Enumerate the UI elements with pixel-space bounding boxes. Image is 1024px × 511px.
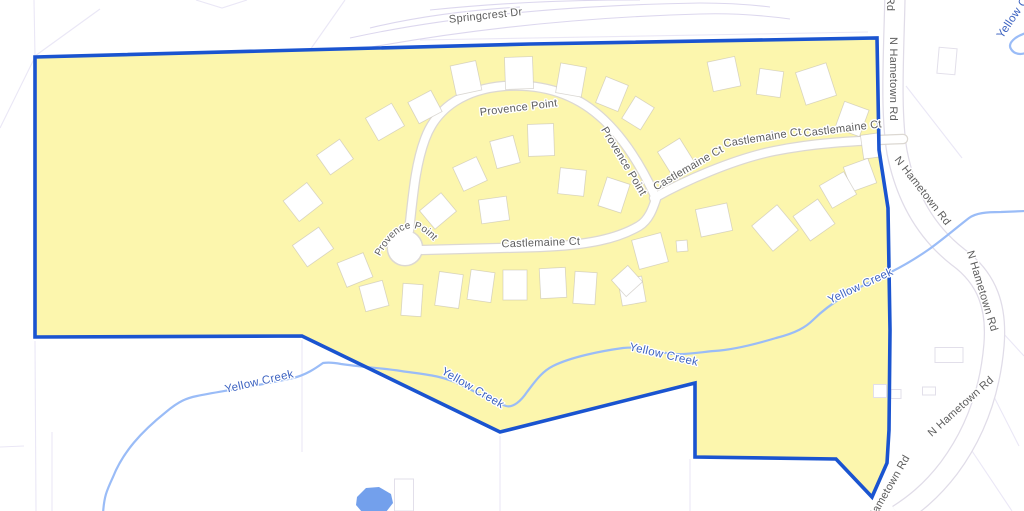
- building-footprint: [539, 267, 567, 298]
- highlighted-parcel-region[interactable]: [35, 38, 890, 497]
- yellow-creek-line: [1010, 33, 1024, 54]
- building-footprint: [923, 387, 936, 395]
- parcel-line: [35, 341, 36, 511]
- building-footprint: [395, 479, 414, 511]
- building-footprint: [695, 203, 732, 237]
- parcel-line: [0, 446, 24, 447]
- springcrest-road-edge: [430, 0, 640, 10]
- parcel-line: [0, 57, 35, 128]
- street-label: Springcrest Dr: [448, 6, 523, 26]
- building-footprint: [558, 168, 587, 197]
- building-footprint: [891, 390, 901, 399]
- parcel-region-fill[interactable]: [35, 38, 890, 497]
- building-footprint: [556, 63, 587, 97]
- hametown-road-surface: [893, 0, 995, 511]
- building-footprint: [527, 124, 554, 157]
- building-footprint: [676, 240, 688, 252]
- building-footprint: [478, 196, 509, 224]
- hametown-road: [893, 0, 995, 511]
- building-footprint: [935, 348, 963, 363]
- parcel-line: [196, 0, 247, 8]
- map-canvas[interactable]: Springcrest DrProvence PointProvence Poi…: [0, 0, 1024, 511]
- building-footprint: [503, 270, 527, 300]
- parcel-line: [1002, 332, 1024, 356]
- street-label: N Hametown Rd: [887, 37, 899, 121]
- building-footprint: [707, 56, 741, 91]
- parcel-line: [35, 9, 100, 56]
- building-footprint: [401, 283, 423, 316]
- building-footprint: [450, 61, 482, 96]
- pond: [356, 487, 393, 511]
- building-footprint: [467, 269, 495, 302]
- street-label: Rd: [884, 0, 896, 11]
- building-footprint: [937, 47, 957, 74]
- building-footprint: [573, 271, 597, 304]
- water-label: Yellow Creek: [224, 368, 295, 396]
- building-footprint: [435, 271, 463, 308]
- springcrest-road-edge: [350, 3, 770, 38]
- building-footprint: [874, 385, 887, 398]
- parcel-line: [34, 0, 35, 57]
- building-footprint: [756, 68, 783, 97]
- parcel-line: [906, 86, 962, 158]
- parcel-line: [310, 0, 345, 50]
- building-footprint: [504, 57, 533, 90]
- map-viewport[interactable]: Springcrest DrProvence PointProvence Poi…: [0, 0, 1024, 511]
